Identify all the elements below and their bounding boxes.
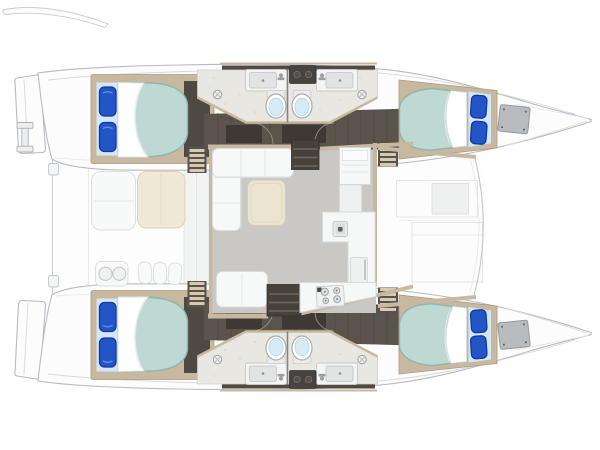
foredeck-panel <box>412 223 483 283</box>
salon-bottom-wall <box>208 314 268 319</box>
cockpit-step-pad <box>138 262 152 284</box>
galley-sink <box>333 222 348 237</box>
toilet <box>292 91 312 119</box>
forward-cabin <box>399 80 497 159</box>
forward-bed-pillow <box>470 95 487 119</box>
shower-drain-icon <box>358 90 366 98</box>
stove <box>316 285 345 307</box>
sofa-top-arm <box>213 149 294 178</box>
sink-drain <box>338 227 343 232</box>
forward-bed-pillow <box>470 121 487 145</box>
bathroom-sink <box>246 70 287 92</box>
bathroom-sink <box>317 70 358 92</box>
toilet-bowl <box>269 98 283 116</box>
toilet <box>266 91 286 119</box>
starboard-stairwell <box>267 285 301 317</box>
chart-panel <box>340 185 362 212</box>
cockpit-step-pad <box>154 263 167 285</box>
sink-drain <box>339 79 342 82</box>
faucet-icon <box>279 73 283 77</box>
cupholder-icon <box>99 267 112 280</box>
nav-cabinet <box>340 148 371 185</box>
faucet-icon <box>320 73 324 77</box>
catamaran-floor-plan <box>0 0 600 450</box>
toilet-bowl <box>295 98 309 116</box>
coffee-table <box>248 180 286 226</box>
faucet-icon <box>319 78 326 81</box>
cockpit-console <box>96 262 129 287</box>
aft-hull-steps <box>188 147 207 174</box>
faucet-icon <box>278 78 285 81</box>
cockpit-step-pad <box>168 263 182 285</box>
salon-left-wall <box>209 149 213 316</box>
bow-locker <box>498 105 531 134</box>
shower-drain-icon <box>213 90 221 98</box>
galley-appliance <box>351 258 368 283</box>
cupholder-icon <box>113 267 126 280</box>
foredeck-recessed-hatch <box>432 184 469 215</box>
stern-cleat <box>49 164 59 176</box>
corridor-wardrobe <box>226 125 262 143</box>
bathroom-hatch <box>290 66 317 84</box>
stern-cleat <box>49 276 59 288</box>
sink-drain <box>262 79 265 82</box>
port-stairwell <box>292 140 320 170</box>
